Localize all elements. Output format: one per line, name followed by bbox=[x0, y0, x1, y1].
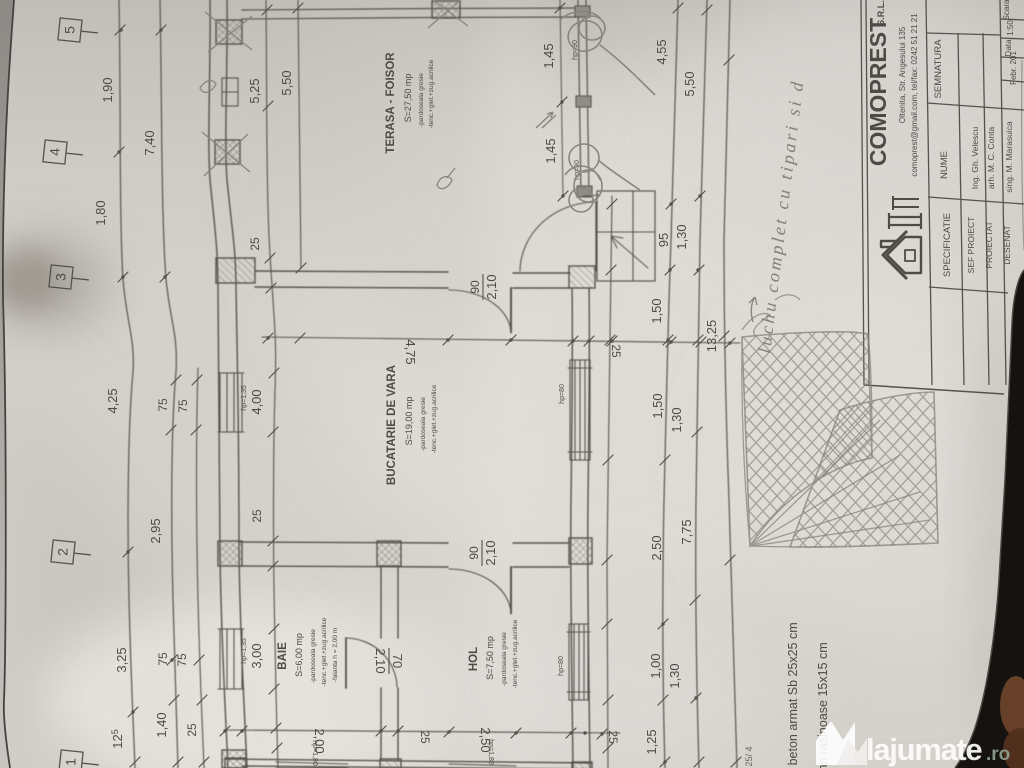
svg-text:2,10: 2,10 bbox=[373, 648, 388, 673]
svg-text:5,50: 5,50 bbox=[682, 71, 697, 96]
svg-text:-tenc.+glet.+zug.acrilice: -tenc.+glet.+zug.acrilice bbox=[321, 617, 328, 686]
svg-text:7,75: 7,75 bbox=[679, 519, 694, 544]
svg-text:2: 2 bbox=[55, 548, 71, 556]
svg-text:90: 90 bbox=[468, 280, 482, 294]
svg-text:13,25: 13,25 bbox=[704, 320, 719, 353]
svg-text:lajumate: lajumate bbox=[866, 732, 982, 767]
svg-text:1,50: 1,50 bbox=[650, 393, 665, 418]
svg-text:90: 90 bbox=[467, 546, 481, 560]
svg-text:95: 95 bbox=[656, 233, 671, 247]
svg-text:hp=80: hp=80 bbox=[558, 656, 565, 676]
svg-text:TERASA - FOISOR: TERASA - FOISOR bbox=[385, 52, 397, 154]
svg-text:hp=1,80: hp=1,80 bbox=[487, 739, 494, 765]
svg-text:75: 75 bbox=[176, 399, 190, 413]
svg-text:S=7,50 mp: S=7,50 mp bbox=[485, 636, 495, 680]
svg-text:2,50: 2,50 bbox=[649, 535, 664, 560]
svg-text:SPECIFICATIE: SPECIFICATIE bbox=[942, 213, 953, 277]
svg-text:5,50: 5,50 bbox=[279, 70, 294, 95]
svg-text:DESENAT: DESENAT bbox=[1002, 225, 1012, 265]
svg-text:7,40: 7,40 bbox=[142, 130, 157, 155]
svg-text:-pardoseala gresie: -pardoseala gresie bbox=[418, 73, 425, 127]
svg-text:25: 25 bbox=[248, 237, 262, 251]
svg-text:1,30: 1,30 bbox=[674, 224, 689, 249]
svg-text:4: 4 bbox=[47, 148, 63, 156]
svg-text:1,50: 1,50 bbox=[649, 298, 664, 323]
svg-text:Oltenita, Str. Angesului 135: Oltenita, Str. Angesului 135 bbox=[898, 26, 907, 123]
svg-text:arh. M. C. Conta: arh. M. C. Conta bbox=[986, 127, 996, 190]
svg-text:75: 75 bbox=[156, 652, 170, 666]
svg-text:3,25: 3,25 bbox=[114, 647, 129, 672]
svg-text:25: 25 bbox=[609, 344, 623, 358]
svg-text:5,25: 5,25 bbox=[247, 78, 262, 103]
svg-text:-tenc.+glet.+zug.acrilice: -tenc.+glet.+zug.acrilice bbox=[428, 59, 435, 128]
svg-text:SEMNATURA: SEMNATURA bbox=[933, 39, 944, 99]
svg-text:4,75: 4,75 bbox=[403, 339, 418, 364]
svg-text:75: 75 bbox=[175, 653, 189, 667]
svg-text:-pardoseala gresie: -pardoseala gresie bbox=[501, 632, 508, 686]
svg-text:S=6,00 mp: S=6,00 mp bbox=[294, 633, 304, 677]
svg-text:sing. M. Marasuica: sing. M. Marasuica bbox=[1004, 121, 1014, 193]
svg-text:S 25/ 4: S 25/ 4 bbox=[744, 746, 754, 768]
svg-text:1,30: 1,30 bbox=[669, 407, 684, 432]
svg-text:4,55: 4,55 bbox=[654, 39, 669, 64]
svg-text:1,40: 1,40 bbox=[154, 712, 169, 737]
svg-text:4,25: 4,25 bbox=[105, 388, 120, 413]
svg-text:Scara: Scara bbox=[1002, 0, 1011, 20]
svg-text:3: 3 bbox=[53, 273, 69, 281]
svg-text:PROIECTAT: PROIECTAT bbox=[984, 221, 994, 268]
svg-text:2,10: 2,10 bbox=[483, 540, 498, 565]
svg-text:4,00: 4,00 bbox=[249, 389, 264, 414]
svg-text:-tenc.+glet.+zug.acrilice: -tenc.+glet.+zug.acrilice bbox=[512, 619, 519, 688]
svg-text:SEF PROIECT: SEF PROIECT bbox=[966, 217, 976, 274]
svg-text:1,90: 1,90 bbox=[100, 77, 115, 102]
svg-text:hp=80: hp=80 bbox=[559, 384, 566, 404]
svg-text:2,95: 2,95 bbox=[148, 518, 163, 543]
svg-text:25: 25 bbox=[606, 730, 620, 744]
svg-text:75: 75 bbox=[156, 398, 170, 412]
svg-text:hp=1,35: hp=1,35 bbox=[241, 385, 248, 411]
svg-text:-faianta h = 2,00 m: -faianta h = 2,00 m bbox=[332, 628, 339, 682]
svg-text:25: 25 bbox=[250, 509, 264, 523]
svg-text:BAIE: BAIE bbox=[277, 642, 289, 670]
svg-text:BUCATARIE DE VARA: BUCATARIE DE VARA bbox=[386, 365, 398, 485]
svg-text:COMOPREST: COMOPREST bbox=[865, 18, 891, 166]
svg-text:25: 25 bbox=[418, 730, 432, 744]
svg-text:2,10: 2,10 bbox=[484, 274, 499, 299]
svg-text:1,25: 1,25 bbox=[644, 729, 659, 754]
svg-text:-tenc.+glet.+zug.acrilice: -tenc.+glet.+zug.acrilice bbox=[431, 384, 438, 453]
svg-text:1,45: 1,45 bbox=[541, 43, 556, 68]
svg-text:1,45: 1,45 bbox=[543, 138, 558, 163]
svg-text:S=19,00 mp: S=19,00 mp bbox=[404, 397, 414, 446]
svg-text:1,30: 1,30 bbox=[667, 663, 682, 688]
svg-text:3,00: 3,00 bbox=[249, 643, 264, 668]
svg-text:1,80: 1,80 bbox=[93, 200, 108, 225]
svg-text:hp=1,35: hp=1,35 bbox=[241, 638, 248, 664]
svg-text:hp=1,80: hp=1,80 bbox=[311, 740, 318, 766]
svg-text:-pardoseala gresie: -pardoseala gresie bbox=[420, 397, 427, 451]
svg-text:comoprest@gmail.com, tel/fax:: comoprest@gmail.com, tel/fax: 0242 51 21… bbox=[910, 13, 919, 177]
svg-text:1:50: 1:50 bbox=[1006, 20, 1015, 36]
svg-text:S=27,50 mp: S=27,50 mp bbox=[403, 74, 413, 123]
svg-text:1: 1 bbox=[63, 758, 79, 766]
svg-text:.ro: .ro bbox=[986, 744, 1010, 765]
svg-text:1,00: 1,00 bbox=[648, 653, 663, 678]
svg-text:NUME: NUME bbox=[939, 151, 950, 179]
svg-text:Ing. Gh. Velescu: Ing. Gh. Velescu bbox=[970, 127, 980, 190]
svg-text:HOL: HOL bbox=[468, 647, 480, 671]
svg-text:-pardoseala gresie: -pardoseala gresie bbox=[310, 629, 317, 683]
svg-text:70: 70 bbox=[390, 654, 405, 668]
svg-text:or beton armat Sb 25x25 cm: or beton armat Sb 25x25 cm bbox=[786, 622, 800, 768]
svg-text:5: 5 bbox=[62, 26, 78, 34]
svg-text:Febr. 201: Febr. 201 bbox=[1009, 51, 1018, 85]
svg-text:25: 25 bbox=[185, 723, 199, 737]
svg-text:S.R.L.: S.R.L. bbox=[876, 0, 886, 26]
